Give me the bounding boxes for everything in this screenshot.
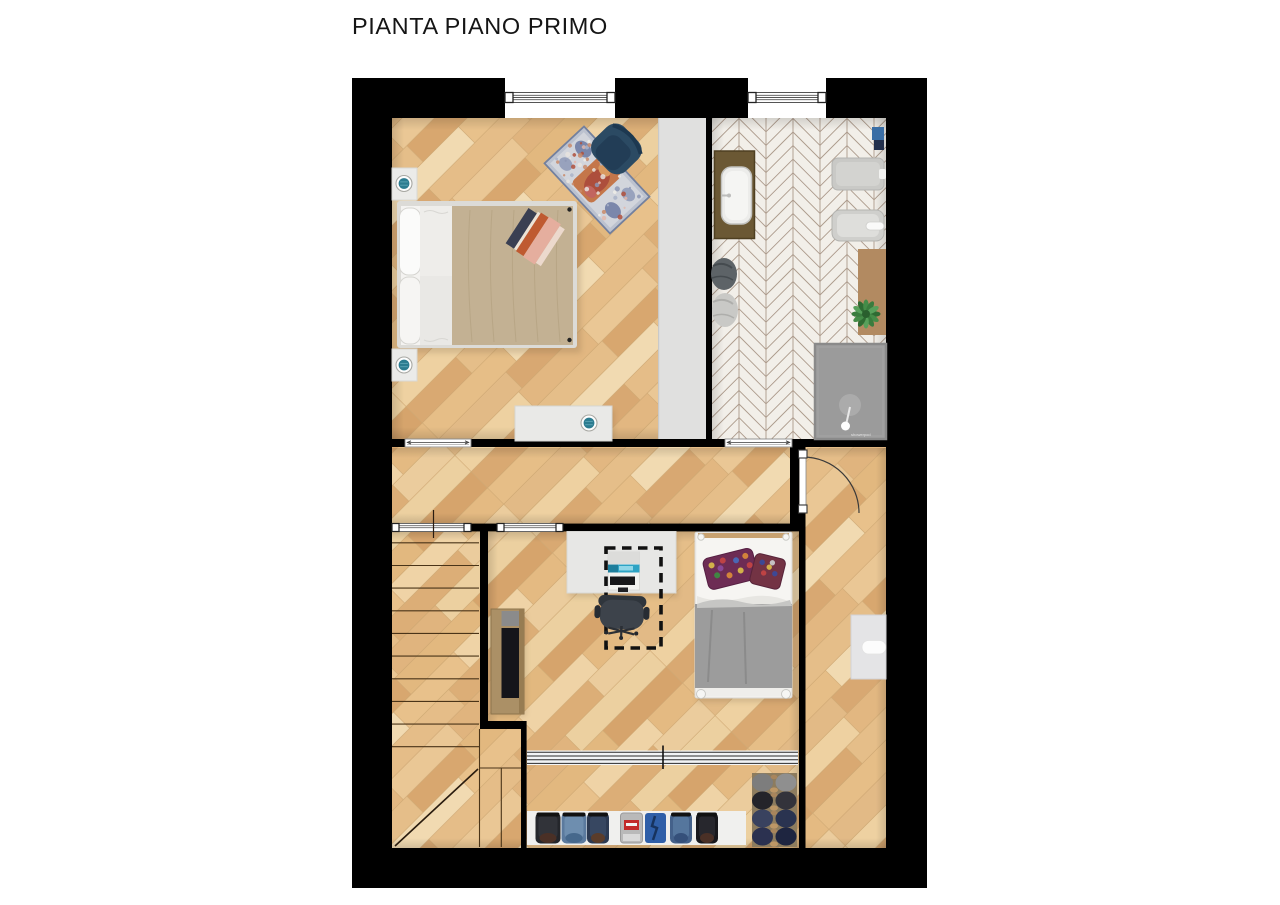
svg-text:showerpod: showerpod <box>851 432 871 437</box>
